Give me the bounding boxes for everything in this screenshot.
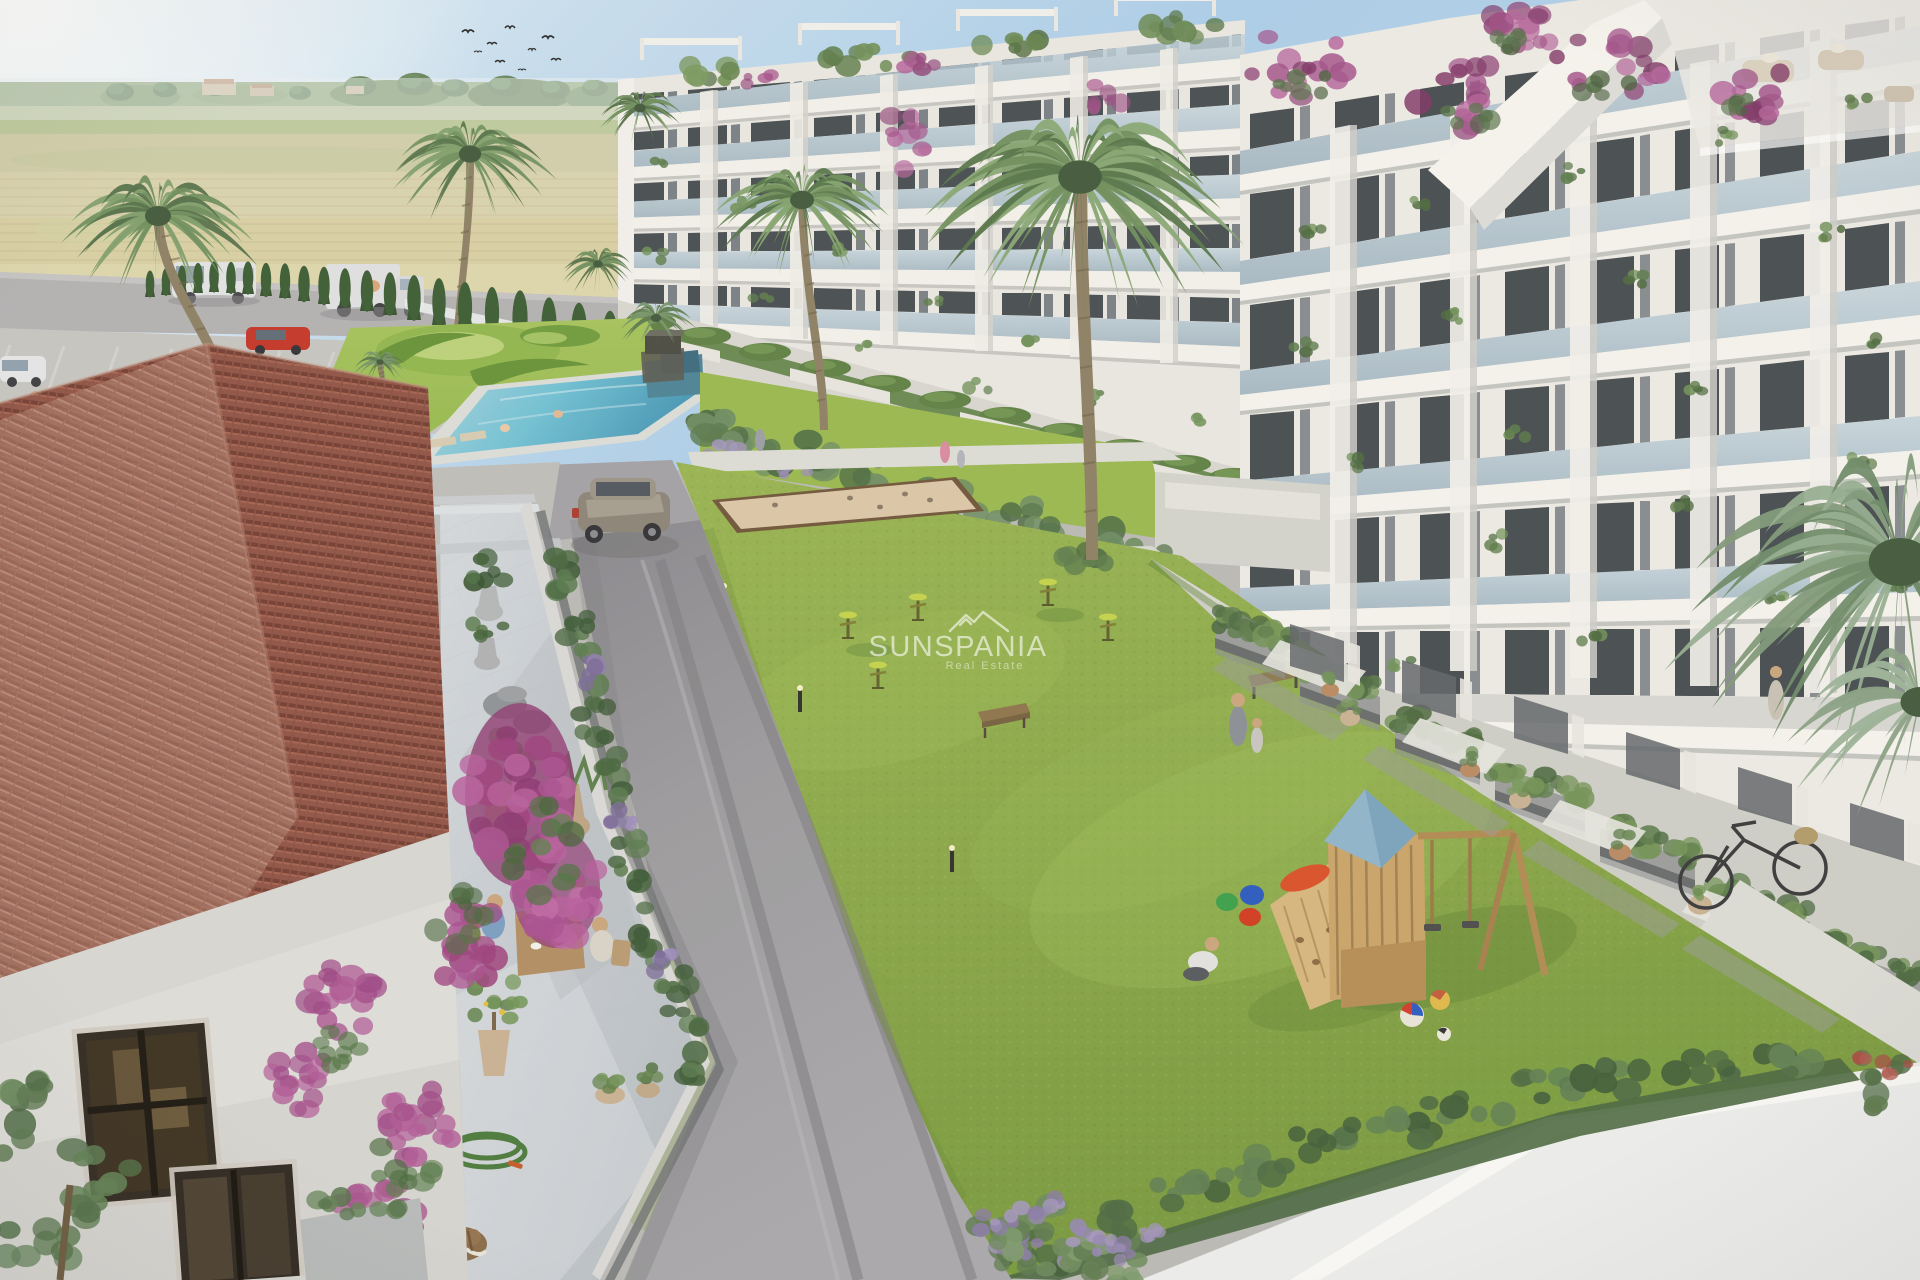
svg-text:Real Estate: Real Estate: [946, 660, 1025, 672]
svg-text:SUNSPANIA: SUNSPANIA: [869, 631, 1048, 663]
